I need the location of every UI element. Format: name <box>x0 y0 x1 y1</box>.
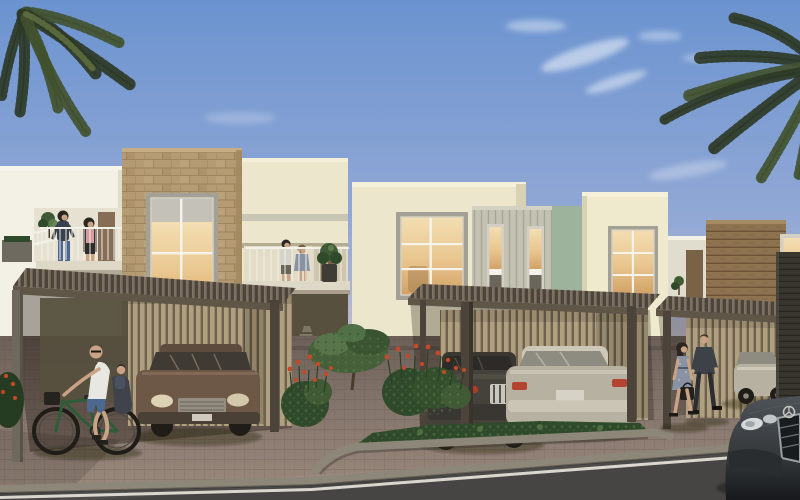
bike-basket <box>44 392 60 405</box>
child-head <box>117 366 125 374</box>
balcony-door <box>98 212 115 262</box>
pergola-post <box>663 311 671 429</box>
wood-clad-wall <box>706 222 786 310</box>
planter-box <box>2 236 32 262</box>
pergola-post <box>627 306 636 422</box>
rendering-canvas: Photorealistic render of a modern townho… <box>0 0 800 500</box>
right-block-window <box>608 226 658 298</box>
pergola-post <box>270 300 279 432</box>
narrow-window-2 <box>527 226 544 294</box>
balcony-slab <box>36 261 126 270</box>
narrow-window-1 <box>487 224 504 294</box>
